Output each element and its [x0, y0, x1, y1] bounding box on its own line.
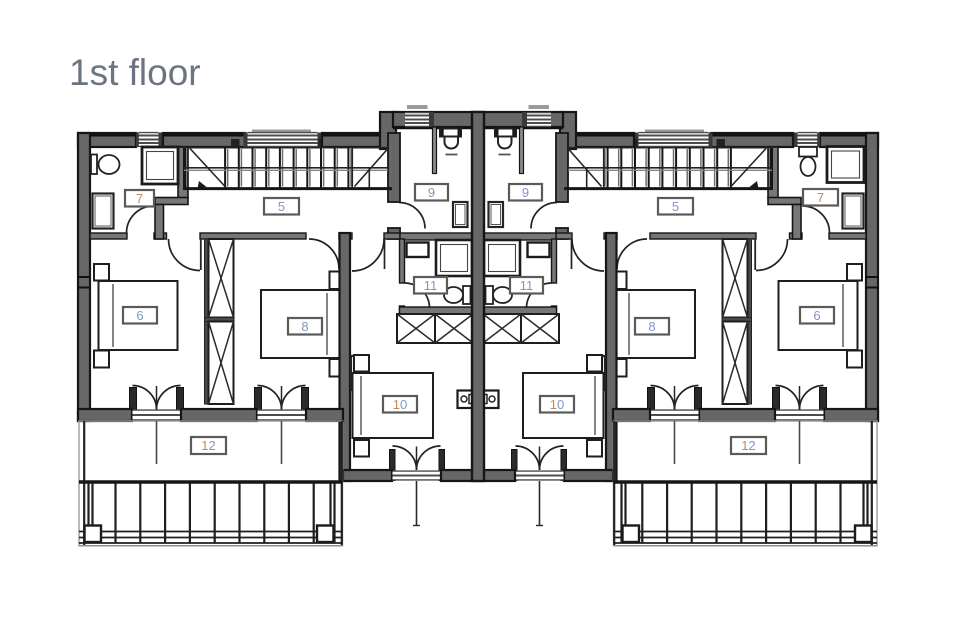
svg-text:5: 5 [672, 199, 679, 214]
svg-text:10: 10 [550, 397, 564, 412]
svg-text:8: 8 [648, 319, 655, 334]
svg-text:11: 11 [520, 278, 534, 293]
svg-text:8: 8 [301, 319, 308, 334]
svg-text:12: 12 [201, 438, 215, 453]
svg-text:11: 11 [424, 278, 438, 293]
svg-text:9: 9 [428, 185, 435, 200]
svg-text:5: 5 [278, 199, 285, 214]
svg-text:10: 10 [393, 397, 407, 412]
svg-text:12: 12 [741, 438, 755, 453]
svg-text:1st floor: 1st floor [69, 52, 201, 93]
svg-text:7: 7 [817, 190, 824, 205]
svg-text:6: 6 [136, 308, 143, 323]
svg-text:7: 7 [136, 191, 143, 206]
svg-text:9: 9 [522, 185, 529, 200]
svg-text:6: 6 [813, 308, 820, 323]
